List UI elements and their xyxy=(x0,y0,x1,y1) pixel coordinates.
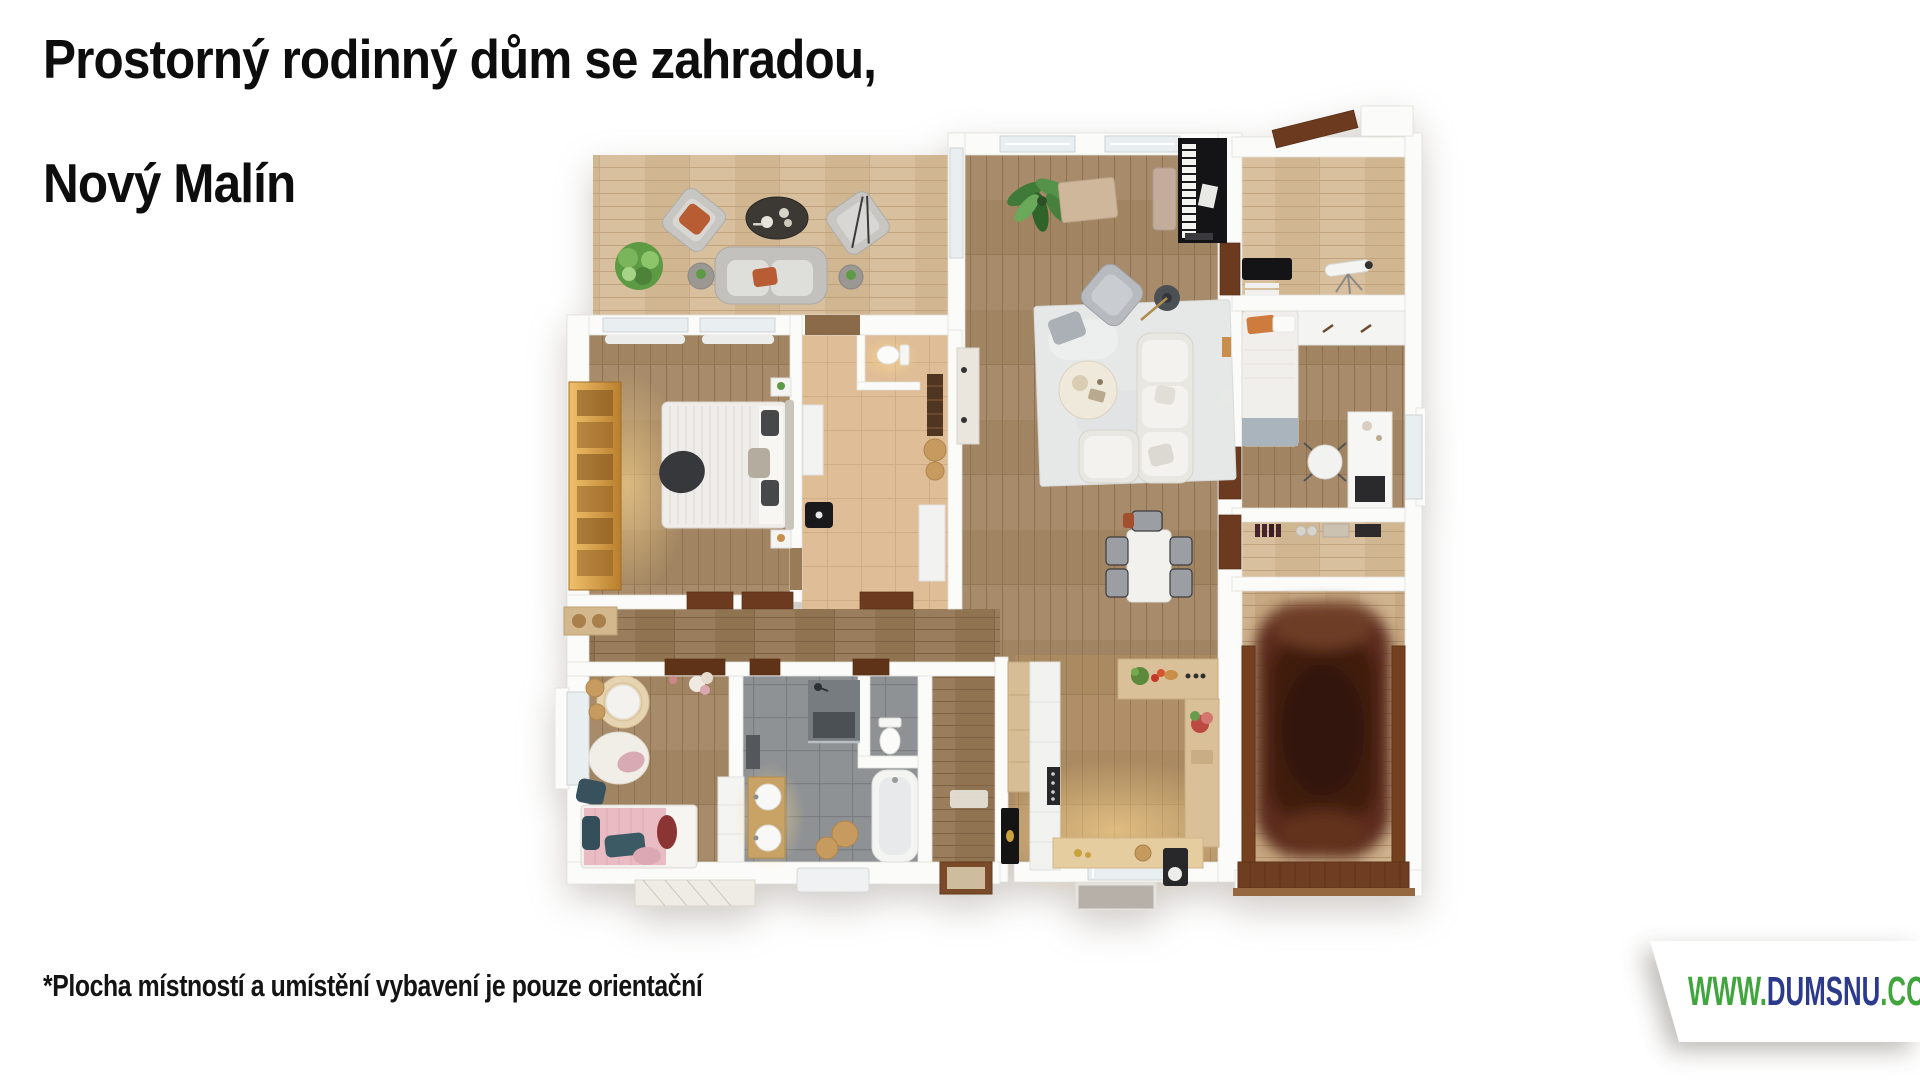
bath-mat xyxy=(797,868,869,892)
back-doormat xyxy=(1077,884,1155,910)
shower xyxy=(808,680,860,742)
kids-bed xyxy=(581,805,697,868)
kids-doormat xyxy=(635,880,755,906)
garage-rail-right xyxy=(1392,646,1405,880)
terrace-plant xyxy=(615,242,663,290)
basket xyxy=(816,837,838,859)
wall-right-wing-north xyxy=(1232,137,1422,157)
entry-floor xyxy=(932,676,995,862)
entry-mat xyxy=(950,790,988,808)
ladder-shelf xyxy=(927,374,943,436)
door-foyer-2 xyxy=(860,592,913,609)
foyer-terrace-doorway xyxy=(805,315,860,335)
door-bath xyxy=(750,659,780,675)
wall-bedroom2-pantry xyxy=(1232,508,1422,522)
title-line1: Prostorný rodinný dům se zahradou, xyxy=(43,28,876,90)
floor-plan xyxy=(555,90,1425,910)
cabinet-brown-2 xyxy=(1219,515,1241,569)
disclaimer-note: *Plocha místností a umístění vybavení je… xyxy=(43,968,702,1004)
mirror-panel xyxy=(746,735,760,769)
wall-study-bedroom2 xyxy=(1232,295,1422,311)
wall-hall-south xyxy=(567,662,1000,676)
watermark-url: WWW.DUMSNU.COM xyxy=(1688,968,1920,1015)
bathtub xyxy=(872,770,918,862)
wall-art xyxy=(1222,390,1231,406)
front-door-leaf xyxy=(947,867,985,889)
foyer-sideboard xyxy=(803,405,823,475)
watermark-banner: WWW.DUMSNU.COM xyxy=(1646,941,1920,1042)
desk xyxy=(1348,412,1392,508)
toilet xyxy=(879,718,901,754)
desk-chair xyxy=(1304,443,1346,481)
closet xyxy=(1295,311,1405,345)
hallway-floor xyxy=(567,609,1000,662)
basket xyxy=(926,462,944,480)
console-table xyxy=(1058,177,1118,223)
door-wc xyxy=(853,659,889,675)
console xyxy=(564,607,617,635)
curtain xyxy=(702,335,774,344)
entry-step xyxy=(1361,106,1413,136)
dining-table xyxy=(1127,530,1171,602)
vanity xyxy=(748,777,785,858)
watermark-tld: .COM xyxy=(1880,968,1920,1014)
coffee-table-round xyxy=(1059,361,1117,419)
equipment-black xyxy=(1242,258,1292,280)
wall-east xyxy=(1405,133,1422,890)
wall-pantry-garage xyxy=(1232,577,1422,591)
wall-art xyxy=(1222,337,1231,357)
curtain xyxy=(605,335,685,344)
basket xyxy=(924,439,946,461)
garage-door xyxy=(1233,862,1415,896)
accent-chair xyxy=(1123,513,1134,528)
master-door-gap xyxy=(790,548,802,590)
door-study xyxy=(1220,243,1240,295)
terrace-sofa xyxy=(715,247,827,304)
door-master xyxy=(687,592,733,609)
room-hallway xyxy=(564,607,617,635)
pouf xyxy=(606,685,640,719)
page: Prostorný rodinný dům se zahradou, Nový … xyxy=(0,0,1920,1080)
foyer-bench xyxy=(919,505,945,581)
title-line2: Nový Malín xyxy=(43,152,295,214)
wall-bath-entry xyxy=(918,676,932,862)
wardrobe-lit xyxy=(569,382,621,590)
car xyxy=(1255,601,1391,858)
garage-rail-left xyxy=(1242,646,1255,880)
guest-toilet xyxy=(877,345,909,365)
master-bed xyxy=(654,400,794,530)
watermark-background: WWW.DUMSNU.COM xyxy=(1646,941,1920,1042)
terrace-coffee-table xyxy=(746,197,808,239)
door-kids xyxy=(665,659,725,675)
door-foyer xyxy=(742,592,793,609)
bed2 xyxy=(1242,311,1298,446)
sideboard xyxy=(957,348,979,444)
watermark-www: WWW. xyxy=(1688,968,1767,1014)
kitchen-tall-cabinet xyxy=(1008,662,1030,792)
watermark-brand: DUMSNU xyxy=(1767,968,1880,1014)
